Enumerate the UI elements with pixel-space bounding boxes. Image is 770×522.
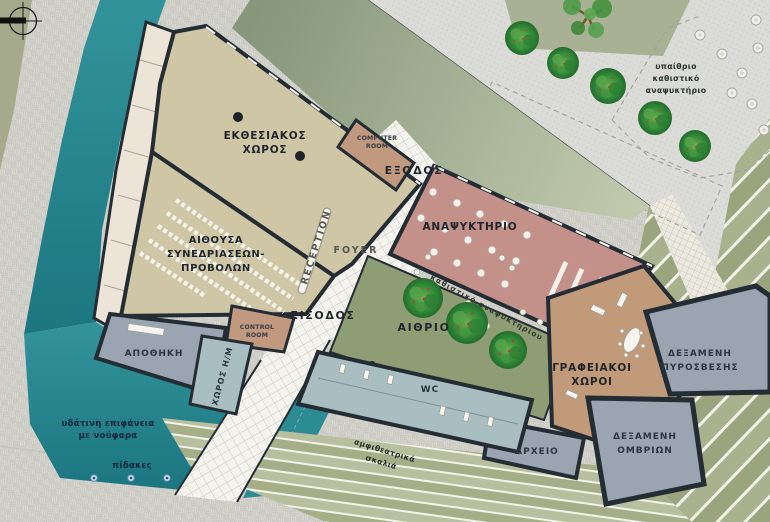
tree	[505, 21, 539, 55]
label-water-lilies: υδάτινη επιφάνεια	[62, 419, 155, 429]
label-control-room: ROOM	[246, 332, 268, 339]
label-computer-room: COMPUTER	[357, 135, 397, 142]
label-atrium: ΑΙΘΡΙΟ	[397, 321, 450, 334]
column-dot	[233, 112, 243, 122]
column-dot	[295, 151, 305, 161]
tree	[679, 130, 711, 162]
label-storage: ΑΠΟΘΗΚΗ	[125, 349, 184, 359]
label-fire-tank: ΔΕΞΑΜΕΝΗ	[668, 349, 732, 359]
label-refreshment-bar: ΑΝΑΨΥΚΤΗΡΙΟ	[423, 221, 518, 233]
label-outdoor-cafe: καθιστικό	[653, 73, 700, 83]
label-exit: ΕΞΟΔΟΣ	[385, 164, 444, 177]
label-computer-room: ROOM	[366, 143, 388, 150]
tree	[590, 68, 626, 104]
tree	[547, 47, 579, 79]
label-jets: πίδακες	[112, 460, 152, 471]
label-outdoor-cafe: αναψυκτήριο	[646, 86, 707, 95]
label-entrance: ΕΙΣΟΔΟΣ	[290, 309, 355, 322]
label-conference: ΑΙΘΟΥΣΑ	[189, 235, 243, 246]
label-foyer: FOYER	[334, 245, 379, 256]
label-rain-tank: ΔΕΞΑΜΕΝΗ	[613, 432, 677, 442]
label-rain-tank: ΟΜΒΡΙΩΝ	[617, 446, 673, 456]
label-outdoor-cafe: υπαίθριο	[655, 61, 697, 71]
label-conference: ΣΥΝΕΔΡΙΑΣΕΩΝ-	[167, 249, 265, 260]
label-control-room: CONTROL	[240, 324, 275, 331]
site-plan: ΕΚΘΕΣΙΑΚΟΣ ΧΩΡΟΣ ΑΙΘΟΥΣΑ ΣΥΝΕΔΡΙΑΣΕΩΝ- Π…	[0, 0, 770, 522]
label-conference: ΠΡΟΒΟΛΩΝ	[181, 263, 251, 274]
label-offices: ΧΩΡΟΙ	[571, 376, 613, 388]
label-archive: ΑΡΧΕΙΟ	[515, 447, 559, 457]
label-exhibition: ΧΩΡΟΣ	[243, 144, 288, 156]
tree	[638, 101, 672, 135]
label-water-lilies: με νούφαρα	[79, 431, 138, 441]
label-offices: ΓΡΑΦΕΙΑΚΟΙ	[552, 362, 632, 374]
label-wc: WC	[421, 385, 440, 395]
label-fire-tank: ΠΥΡΟΣΒΕΣΗΣ	[661, 363, 738, 373]
atrium-tree	[489, 331, 527, 369]
label-exhibition: ΕΚΘΕΣΙΑΚΟΣ	[224, 130, 307, 142]
